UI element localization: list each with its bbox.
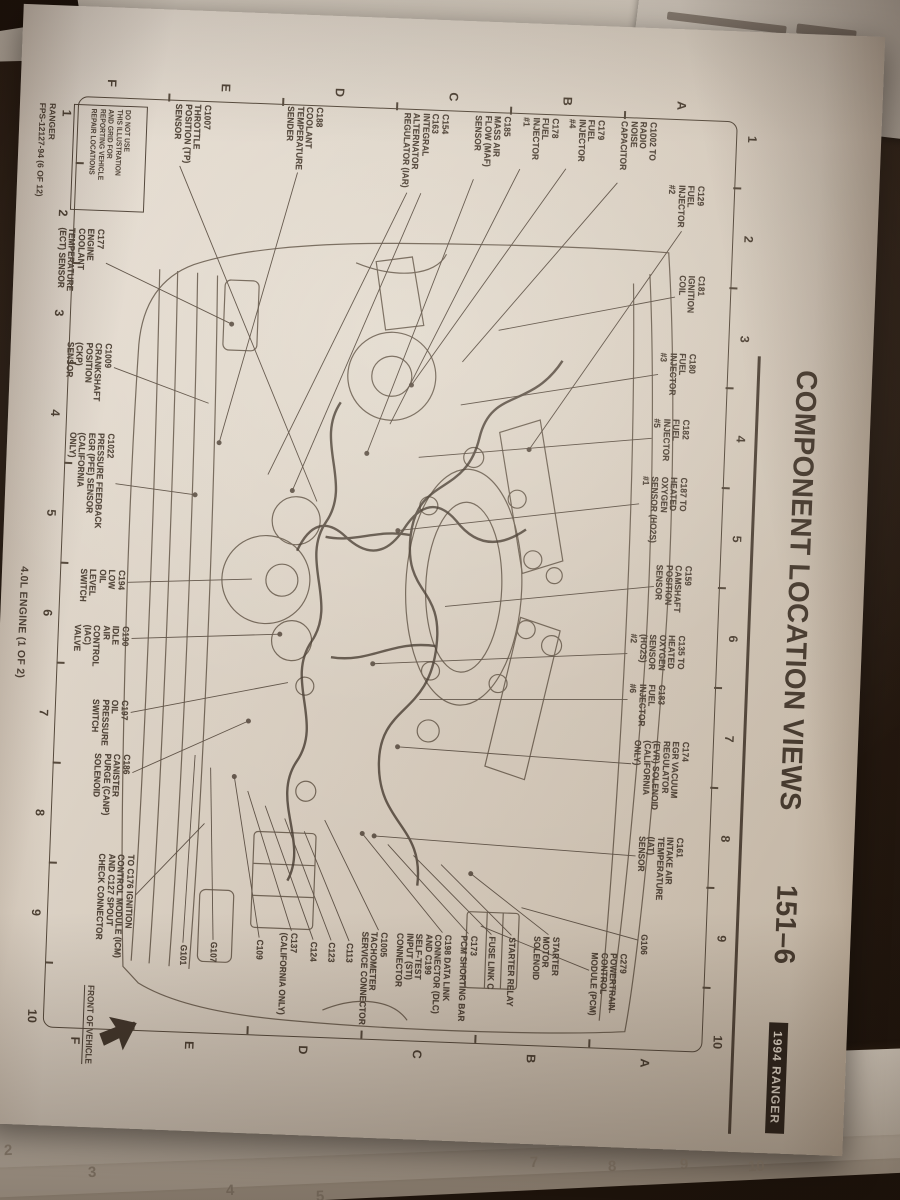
callout-label: C1022 PRESSURE FEEDBACK EGR (PFE) SENSOR… bbox=[64, 432, 116, 529]
callout-label: C188 COOLANT TEMPERATURE SENDER bbox=[283, 106, 324, 171]
callout-label: STARTER MOTOR SOLENOID bbox=[530, 936, 560, 981]
leader-line bbox=[520, 908, 639, 941]
rotated-page-content: COMPONENT LOCATION VIEWS 151–6 1994 RANG… bbox=[0, 10, 875, 1142]
leader-line bbox=[397, 747, 631, 764]
leader-line bbox=[374, 836, 636, 856]
callout-label: C129 FUEL INJECTOR #2 bbox=[665, 185, 705, 229]
leader-line bbox=[445, 579, 654, 615]
leader-line bbox=[419, 692, 627, 708]
callout-label: STARTER RELAY bbox=[504, 937, 516, 1007]
callout-label: C159 CAMSHAFT POSITION SENSOR bbox=[653, 564, 693, 613]
leader-line bbox=[128, 574, 252, 587]
leader-line bbox=[228, 777, 265, 938]
callout-label: C186 CANISTER PURGE (CANP) SOLENOID bbox=[90, 753, 131, 816]
callout-label: C174 EGR VACUUM REGULATOR (EVR) SOLENOID… bbox=[630, 740, 690, 812]
leader-line bbox=[419, 429, 652, 466]
manual-page: COMPONENT LOCATION VIEWS 151–6 1994 RANG… bbox=[0, 4, 885, 1156]
leader-line bbox=[385, 844, 472, 933]
callout-label: G106 bbox=[638, 934, 648, 955]
leader-line bbox=[499, 290, 675, 337]
leader-line bbox=[131, 677, 288, 719]
leader-line bbox=[242, 791, 296, 931]
leader-line bbox=[183, 755, 195, 943]
callout-label: C178 FUEL INJECTOR #1 bbox=[520, 117, 560, 161]
callout-label: C173 PCM SHORTING BAR bbox=[456, 935, 478, 1022]
leader-line bbox=[359, 833, 447, 932]
callout-label: C177 ENGINE COOLANT TEMPERATURE (ECT) SE… bbox=[55, 227, 105, 292]
callout-label: C185 MASS AIR FLOW (MAF) SENSOR bbox=[472, 115, 512, 167]
callout-label: G101 bbox=[177, 944, 187, 965]
callout-label: C113 bbox=[344, 943, 354, 963]
leader-line bbox=[113, 368, 210, 404]
callout-label: C1009 CRANKSHAFT POSITION (CKP) SENSOR bbox=[63, 342, 113, 402]
leader-line bbox=[268, 188, 407, 480]
leader-line bbox=[438, 865, 514, 936]
front-of-vehicle-arrow bbox=[95, 1015, 139, 1063]
leader-line bbox=[373, 644, 628, 674]
callout-label: C137 (CALIFORNIA ONLY) bbox=[276, 932, 298, 1015]
callout-label: C180 FUEL INJECTOR #3 bbox=[657, 352, 697, 396]
callout-label: C109 bbox=[254, 939, 264, 960]
callout-label: C194 LOW OIL LEVEL SWITCH bbox=[77, 568, 126, 603]
publication-code: RANGER FPS-12127-94 (6 OF 12) bbox=[34, 102, 58, 197]
underlying-grid-number: 3 bbox=[88, 1164, 97, 1181]
leader-line bbox=[219, 170, 297, 445]
callout-label: C187 TO HEATED OXYGEN SENSOR (HO2S) #1 bbox=[638, 476, 688, 544]
leader-line bbox=[204, 768, 220, 940]
callout-label: C1007 THROTTLE POSITION (TP) SENSOR bbox=[171, 104, 212, 165]
leader-line bbox=[104, 263, 234, 324]
callout-label: C154 C163 INTEGRAL ALTERNATOR REGULATOR … bbox=[399, 112, 450, 189]
leader-line bbox=[321, 820, 383, 930]
callout-label: C198 DATA LINK CONNECTOR (DLC) AND C199 … bbox=[392, 933, 453, 1015]
leader-line bbox=[260, 806, 318, 940]
warning-box: DO NOT USETHIS ILLUSTRATIONAND GRID FORR… bbox=[70, 104, 148, 213]
leader-line bbox=[398, 495, 639, 540]
callout-label: FUSE LINK C bbox=[485, 936, 497, 989]
callout-label: C135 TO HEATED OXYGEN SENSOR (HO2S) #2 bbox=[627, 634, 686, 672]
leader-line bbox=[410, 855, 494, 934]
underlying-grid-number: 5 bbox=[316, 1188, 325, 1200]
callout-label: C182 FUEL INJECTOR #5 bbox=[650, 418, 690, 462]
callout-label: C123 bbox=[326, 942, 336, 963]
photo-of-manual-page: 234578910 COMPONENT LOCATION VIEWS 151–6… bbox=[0, 0, 900, 1200]
underlying-grid-number: 7 bbox=[530, 1154, 539, 1171]
callout-label: C124 bbox=[308, 941, 318, 962]
callout-label: C1005 TACHOMETER SERVICE CONNECTOR bbox=[356, 931, 388, 1025]
callout-label: C183 FUEL INJECTOR #6 bbox=[626, 684, 666, 728]
leader-line bbox=[411, 163, 565, 390]
leader-line bbox=[167, 166, 330, 502]
callout-label: C190 IDLE AIR CONTROL (IAC) VALVE bbox=[71, 624, 130, 668]
leader-line bbox=[132, 628, 280, 644]
underlying-grid-number: 9 bbox=[680, 1156, 689, 1173]
underlying-grid-number: 4 bbox=[226, 1182, 235, 1199]
callout-label: C161 INTAKE AIR TEMPERATURE (IAT) SENSOR bbox=[634, 836, 684, 901]
leader-line bbox=[367, 176, 474, 457]
callout-label: G107 bbox=[208, 942, 218, 963]
callout-label: TO C176 IGNITION CONTROL MODULE (ICM) AN… bbox=[93, 853, 135, 958]
callout-label: C1002 TO RADIO NOISE CAPACITOR bbox=[617, 121, 657, 172]
callout-label: C279 POWERTRAIN CONTROL MODULE (PCM) bbox=[587, 952, 628, 1017]
leader-line bbox=[390, 164, 520, 428]
underlying-grid-number: 8 bbox=[608, 1158, 617, 1175]
callout-label: C197 OIL PRESSURE SWITCH bbox=[89, 699, 129, 747]
underlying-grid-number: 2 bbox=[4, 1142, 13, 1159]
leader-line bbox=[136, 821, 205, 897]
leader-line bbox=[292, 189, 421, 495]
underlying-grid-number: 10 bbox=[748, 1158, 765, 1176]
leader-line bbox=[132, 717, 248, 777]
callout-label: C181 IGNITION COIL bbox=[676, 275, 706, 314]
leader-line bbox=[115, 484, 195, 495]
callout-label: C179 FUEL INJECTOR #4 bbox=[566, 119, 606, 163]
